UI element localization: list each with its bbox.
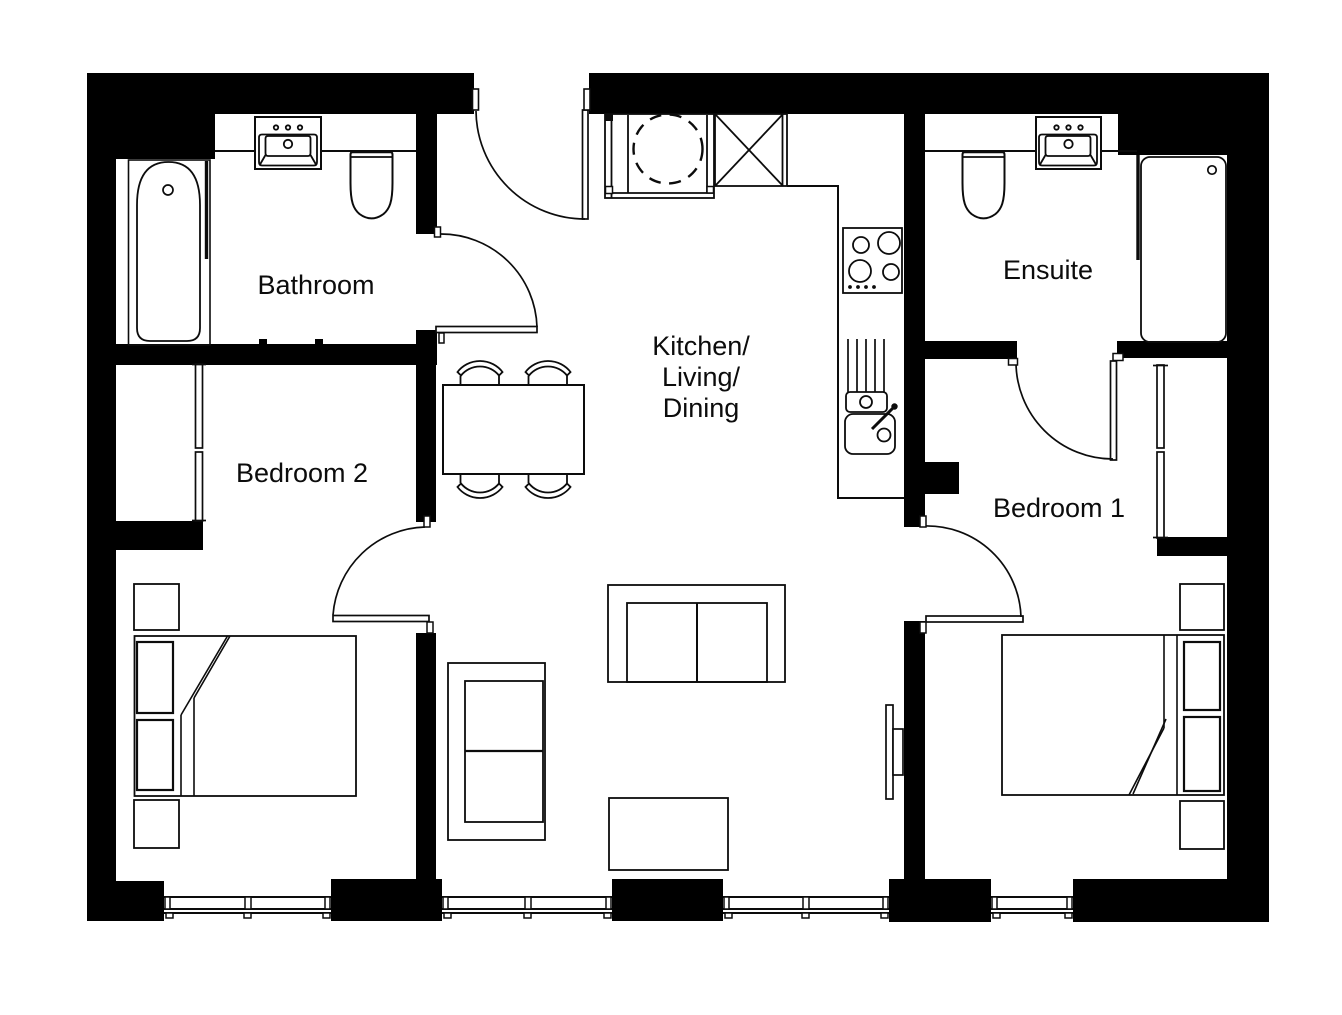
svg-text:Bedroom 2: Bedroom 2 [236,458,368,488]
svg-text:Bedroom 1: Bedroom 1 [993,493,1125,523]
svg-text:Living/: Living/ [662,362,741,392]
svg-text:Bathroom: Bathroom [257,270,374,300]
svg-text:Dining: Dining [663,393,740,423]
svg-text:Kitchen/: Kitchen/ [652,331,750,361]
svg-text:Ensuite: Ensuite [1003,255,1093,285]
